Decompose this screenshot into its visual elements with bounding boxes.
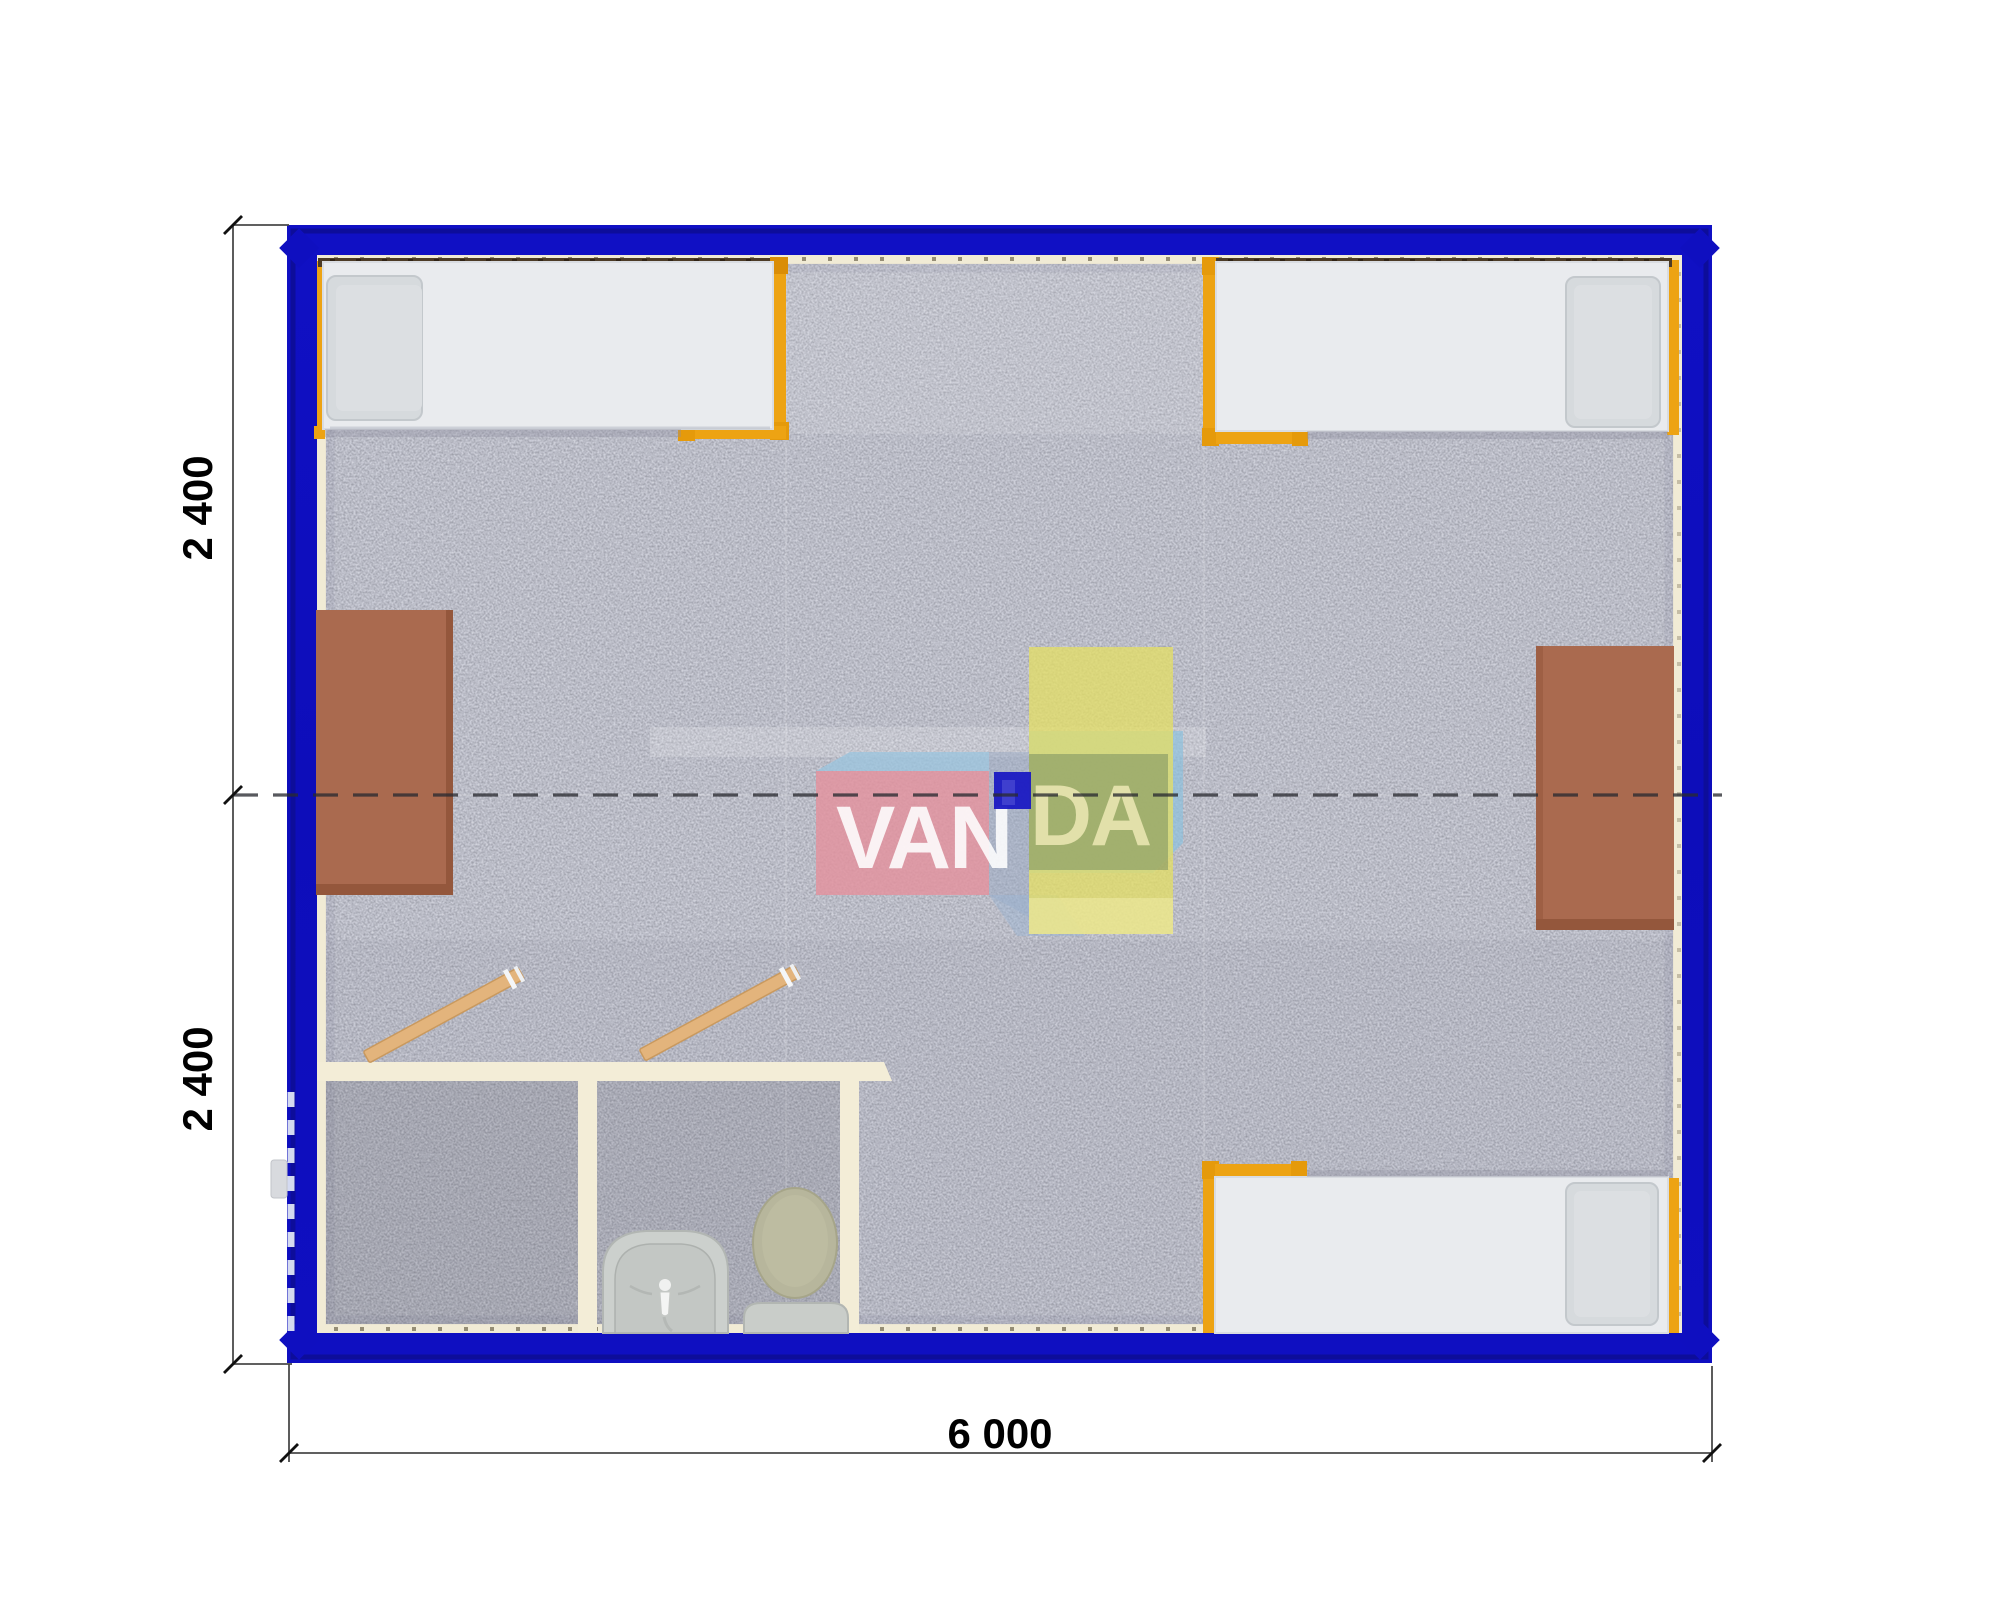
svg-text:2 400: 2 400 <box>174 455 221 560</box>
svg-text:VAN: VAN <box>836 787 1011 887</box>
svg-text:2 400: 2 400 <box>174 1026 221 1131</box>
svg-text:DA: DA <box>1030 768 1150 864</box>
svg-text:6 000: 6 000 <box>947 1410 1052 1457</box>
